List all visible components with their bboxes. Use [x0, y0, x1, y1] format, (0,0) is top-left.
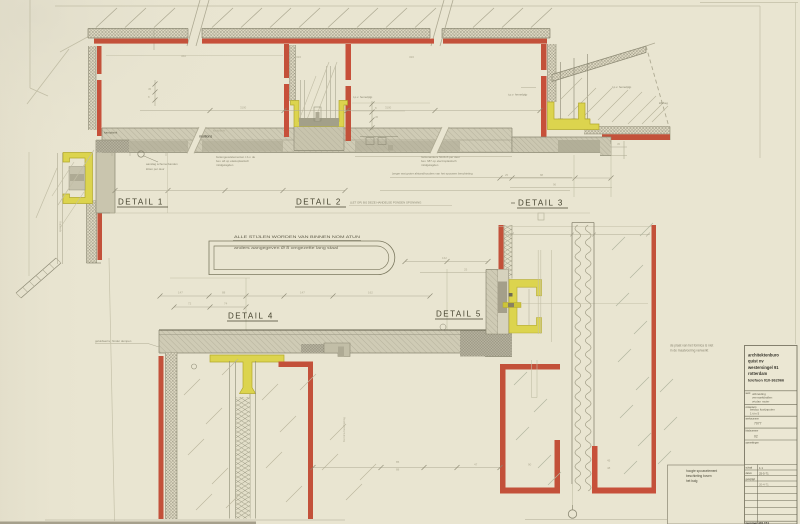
svg-text:kitvoeg: kitvoeg: [659, 101, 668, 105]
svg-text:t.p.v. hemelpijp: t.p.v. hemelpijp: [353, 95, 373, 99]
svg-text:88: 88: [540, 173, 544, 177]
svg-text:DETAIL 2: DETAIL 2: [296, 198, 342, 207]
svg-text:werk: werk: [746, 392, 752, 395]
svg-text:aanslag schemerbanden: aanslag schemerbanden: [146, 162, 178, 166]
svg-text:quist nv: quist nv: [748, 359, 764, 364]
svg-text:02: 02: [754, 435, 758, 439]
svg-text:geluidwering hinder dempen: geluidwering hinder dempen: [95, 339, 132, 343]
svg-text:ALLE STIJLEN WORDEN VAN BINNEN: ALLE STIJLEN WORDEN VAN BINNEN NOM ATUN: [234, 235, 361, 239]
svg-text:datum: datum: [746, 472, 752, 475]
svg-text:t.p.v. hemelpijp: t.p.v. hemelpijp: [612, 85, 632, 89]
svg-text:(LET OP) BIJ DEZE HANDELSE PON: (LET OP) BIJ DEZE HANDELSE PONDEN SPONNI…: [350, 201, 422, 205]
svg-text:het balg: het balg: [686, 479, 698, 483]
svg-text:3100: 3100: [385, 106, 392, 110]
svg-text:162: 162: [368, 291, 373, 295]
svg-text:85: 85: [396, 460, 400, 464]
svg-text:hoogte spouwelement: hoogte spouwelement: [686, 469, 717, 473]
svg-text:kantplank: kantplank: [104, 131, 118, 135]
svg-text:rotterdam: rotterdam: [748, 371, 767, 376]
svg-text:90: 90: [528, 463, 532, 467]
svg-text:88: 88: [222, 291, 226, 295]
svg-text:20-4-71: 20-4-71: [759, 482, 769, 486]
svg-text:werknummer: werknummer: [746, 418, 760, 421]
svg-text:in de maatvoering verwerkt: in de maatvoering verwerkt: [670, 349, 708, 353]
svg-text:7077: 7077: [754, 422, 762, 426]
svg-text:mitdgelagden: mitdgelagden: [216, 163, 234, 167]
svg-text:schaal: schaal: [746, 468, 753, 470]
svg-text:bladnummer: bladnummer: [746, 430, 759, 433]
svg-text:sponning: sponning: [58, 221, 62, 232]
svg-text:3100: 3100: [240, 106, 247, 110]
svg-text:45: 45: [617, 142, 620, 146]
svg-text:opmerkingen: opmerkingen: [746, 442, 760, 445]
svg-text:25-5-71: 25-5-71: [759, 471, 769, 475]
svg-text:anders aangegeven Ø 8 omgezett: anders aangegeven Ø 8 omgezette lang sta…: [234, 246, 338, 250]
svg-text:(zeger wat groter afstandhoude: (zeger wat groter afstandhouders van het…: [392, 172, 473, 176]
svg-text:48: 48: [607, 466, 611, 470]
svg-text:DETAIL 3: DETAIL 3: [518, 199, 564, 208]
svg-text:45: 45: [375, 115, 379, 119]
svg-text:74: 74: [224, 302, 228, 306]
svg-text:147: 147: [300, 291, 305, 295]
svg-text:360: 360: [181, 54, 186, 58]
svg-text:45: 45: [148, 87, 152, 91]
svg-text:25: 25: [464, 268, 468, 272]
svg-text:mullions: mullions: [199, 135, 212, 139]
svg-text:gewijzigd: gewijzigd: [746, 479, 756, 481]
svg-text:96: 96: [553, 183, 557, 187]
svg-text:beschieting boven: beschieting boven: [686, 474, 712, 478]
svg-text:147: 147: [178, 291, 183, 295]
svg-text:162: 162: [442, 256, 447, 260]
svg-text:DETAIL 5: DETAIL 5: [436, 310, 482, 319]
svg-text:320: 320: [296, 55, 301, 59]
svg-text:1:1: 1:1: [759, 466, 763, 470]
svg-text:t.p.v. hemelpijp: t.p.v. hemelpijp: [508, 93, 528, 97]
svg-text:1 t/m 5: 1 t/m 5: [750, 411, 760, 415]
svg-text:kantplank: kantplank: [213, 129, 226, 133]
svg-text:88: 88: [396, 468, 400, 472]
svg-text:DETAIL 4: DETAIL 4: [228, 312, 274, 321]
svg-text:45: 45: [607, 459, 611, 463]
svg-text:formica beschieting: formica beschieting: [342, 417, 346, 442]
svg-text:320: 320: [409, 55, 414, 59]
svg-text:DETAIL 1: DETAIL 1: [118, 198, 164, 207]
svg-text:kitten per deur: kitten per deur: [146, 167, 165, 171]
svg-text:72: 72: [188, 302, 192, 306]
svg-text:mitdgelagden: mitdgelagden: [421, 163, 439, 167]
svg-text:westersingel 91: westersingel 91: [747, 365, 779, 370]
svg-text:de plaat van het formica is ni: de plaat van het formica is niet: [670, 344, 713, 348]
svg-text:architektenburo: architektenburo: [748, 353, 779, 358]
svg-text:47: 47: [474, 463, 478, 467]
svg-text:25: 25: [505, 173, 509, 177]
svg-text:vrtolan muier: vrtolan muier: [752, 399, 769, 403]
svg-text:telefoon 010-362066: telefoon 010-362066: [748, 378, 784, 382]
